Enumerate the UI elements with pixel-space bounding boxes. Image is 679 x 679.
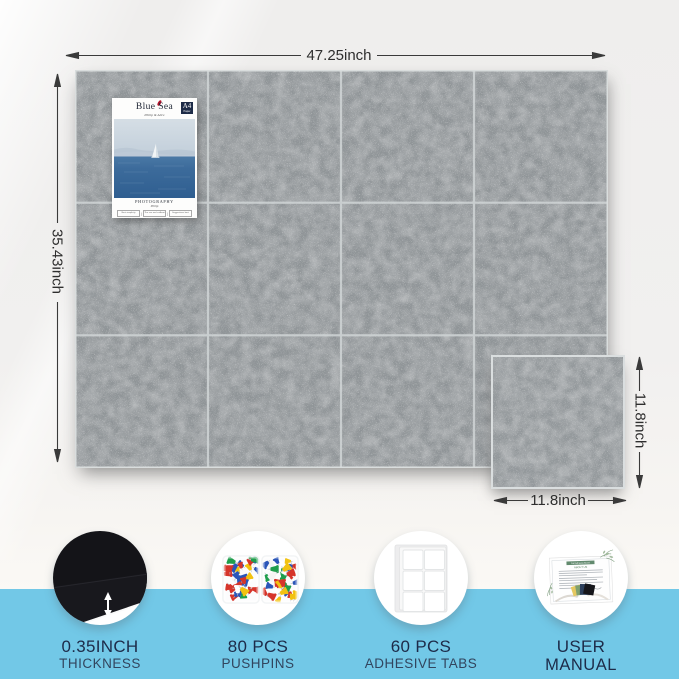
svg-text:ABOUT US: ABOUT US — [574, 565, 588, 569]
